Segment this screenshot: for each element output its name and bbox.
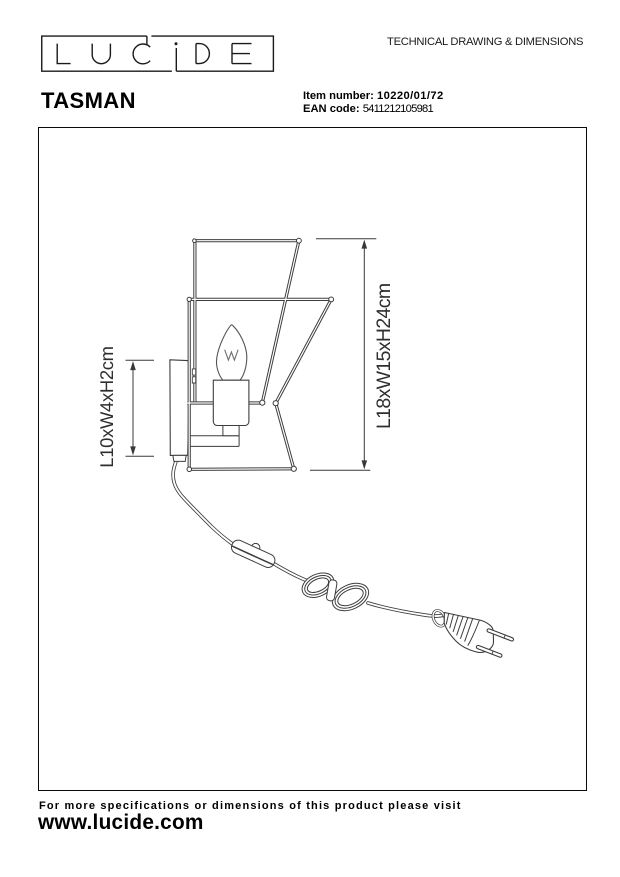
svg-text:L18xW15xH24cm: L18xW15xH24cm	[373, 284, 395, 429]
svg-text:L10xW4xH2cm: L10xW4xH2cm	[96, 346, 117, 467]
